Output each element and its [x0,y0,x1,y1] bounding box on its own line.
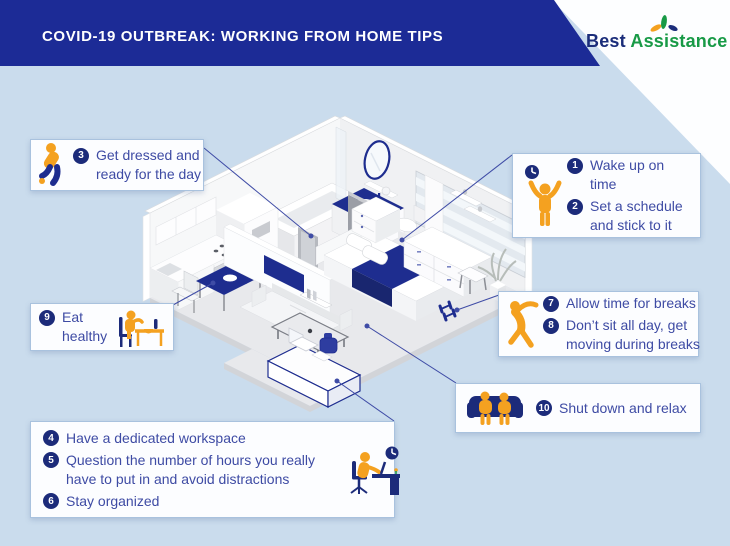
tip-number-badge: 1 [567,158,583,174]
callout-shut-down: 10 Shut down and relax [455,383,701,433]
tip-number-badge: 6 [43,493,59,509]
tip-number-badge: 5 [43,452,59,468]
tip-item: 2 Set a schedule and stick to it [567,197,694,235]
clock-icon [386,446,399,459]
tip-item: 10 Shut down and relax [536,399,687,418]
tip-item: 6 Stay organized [43,492,344,511]
tip-item: 9 Eat healthy [39,308,115,346]
clock-icon [525,165,539,179]
person-eating-icon [115,306,165,348]
tip-number-badge: 7 [543,296,559,312]
person-arms-up-icon [521,163,567,229]
page-title: COVID-19 OUTBREAK: WORKING FROM HOME TIP… [42,28,443,45]
callout-breaks: 7 Allow time for breaks 8 Don’t sit all … [498,291,699,357]
tip-item: 4 Have a dedicated workspace [43,429,344,448]
tip-number-badge: 3 [73,148,89,164]
callout-workspace: 4 Have a dedicated workspace 5 Question … [30,421,395,518]
brand-logo: Best Assistance [586,31,727,52]
tip-number-badge: 9 [39,310,55,326]
callout-get-dressed: 3 Get dressed and ready for the day [30,139,204,191]
tip-item: 8 Don’t sit all day, get moving during b… [543,316,716,354]
tip-item: 1 Wake up on time [567,156,694,194]
tip-number-badge: 2 [567,199,583,215]
couple-on-couch-icon [466,389,524,427]
person-getting-dressed-icon [37,141,73,189]
shower-glass [336,127,346,203]
infographic-canvas: COVID-19 OUTBREAK: WORKING FROM HOME TIP… [0,0,730,546]
callout-wake-up: 1 Wake up on time 2 Set a schedule and s… [512,153,701,238]
tip-item: 5 Question the number of hours you reall… [43,451,344,489]
tip-item: 7 Allow time for breaks [543,294,716,313]
tip-number-badge: 8 [543,318,559,334]
logo-word-best: Best [586,31,626,51]
tip-number-badge: 10 [536,400,552,416]
tip-number-badge: 4 [43,430,59,446]
tip-item: 3 Get dressed and ready for the day [73,146,220,184]
callout-eat-healthy: 9 Eat healthy [30,303,174,351]
logo-leaves-icon [648,14,682,36]
house-illustration [140,85,550,420]
person-at-desk-icon [344,443,404,497]
person-stretching-icon [505,296,543,352]
